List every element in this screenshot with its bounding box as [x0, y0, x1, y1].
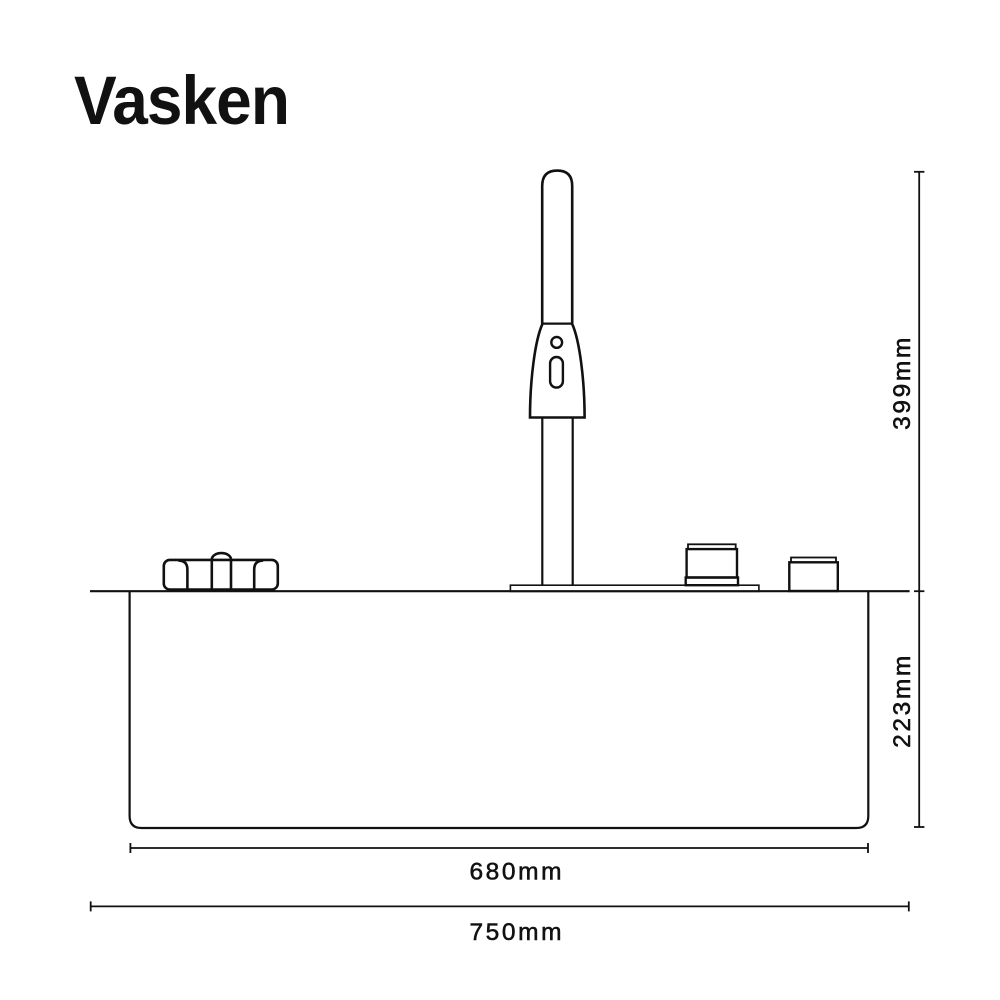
svg-text:Vasken: Vasken — [74, 62, 289, 139]
svg-text:399mm: 399mm — [889, 335, 916, 430]
svg-text:750mm: 750mm — [469, 919, 564, 946]
svg-text:680mm: 680mm — [469, 859, 564, 886]
svg-text:223mm: 223mm — [889, 653, 916, 748]
